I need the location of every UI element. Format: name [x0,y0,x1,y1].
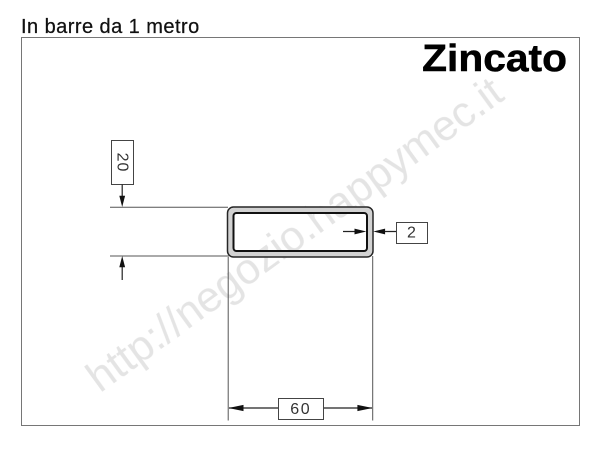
svg-text:2: 2 [407,224,416,241]
svg-text:60: 60 [290,401,311,418]
svg-text:20: 20 [114,153,131,173]
